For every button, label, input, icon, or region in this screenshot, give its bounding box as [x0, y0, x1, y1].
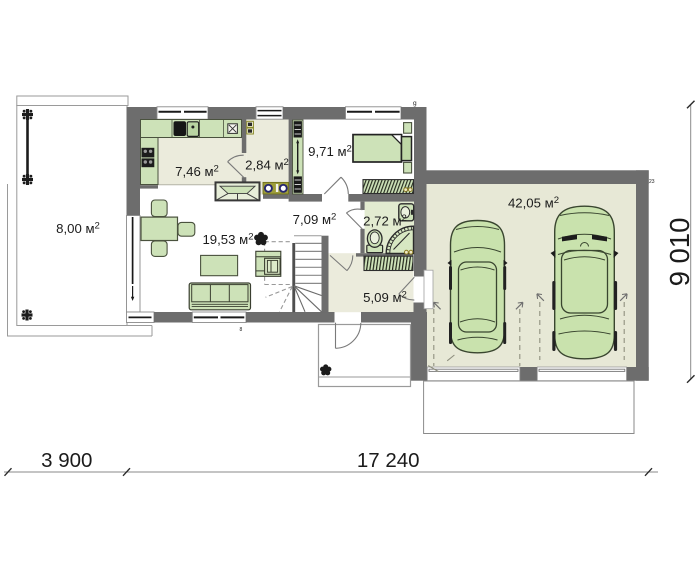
svg-text:42,05 м2: 42,05 м2: [508, 195, 559, 211]
svg-text:7,09 м2: 7,09 м2: [293, 212, 337, 228]
svg-text:g: g: [413, 100, 417, 107]
svg-text:9,71 м2: 9,71 м2: [308, 144, 352, 160]
svg-text:8: 8: [240, 327, 243, 333]
svg-text:2,84 м2: 2,84 м2: [245, 157, 289, 173]
svg-text:23: 23: [649, 179, 655, 185]
svg-text:5,09 м2: 5,09 м2: [363, 289, 407, 305]
svg-text:8,00 м2: 8,00 м2: [56, 221, 100, 237]
svg-text:3 900: 3 900: [41, 449, 92, 472]
svg-text:9 010: 9 010: [664, 218, 695, 287]
svg-text:7,46 м2: 7,46 м2: [175, 163, 219, 179]
svg-text:17 240: 17 240: [357, 449, 420, 472]
svg-text:19,53 м2: 19,53 м2: [202, 231, 253, 247]
svg-text:2,72 м2: 2,72 м2: [363, 213, 407, 229]
